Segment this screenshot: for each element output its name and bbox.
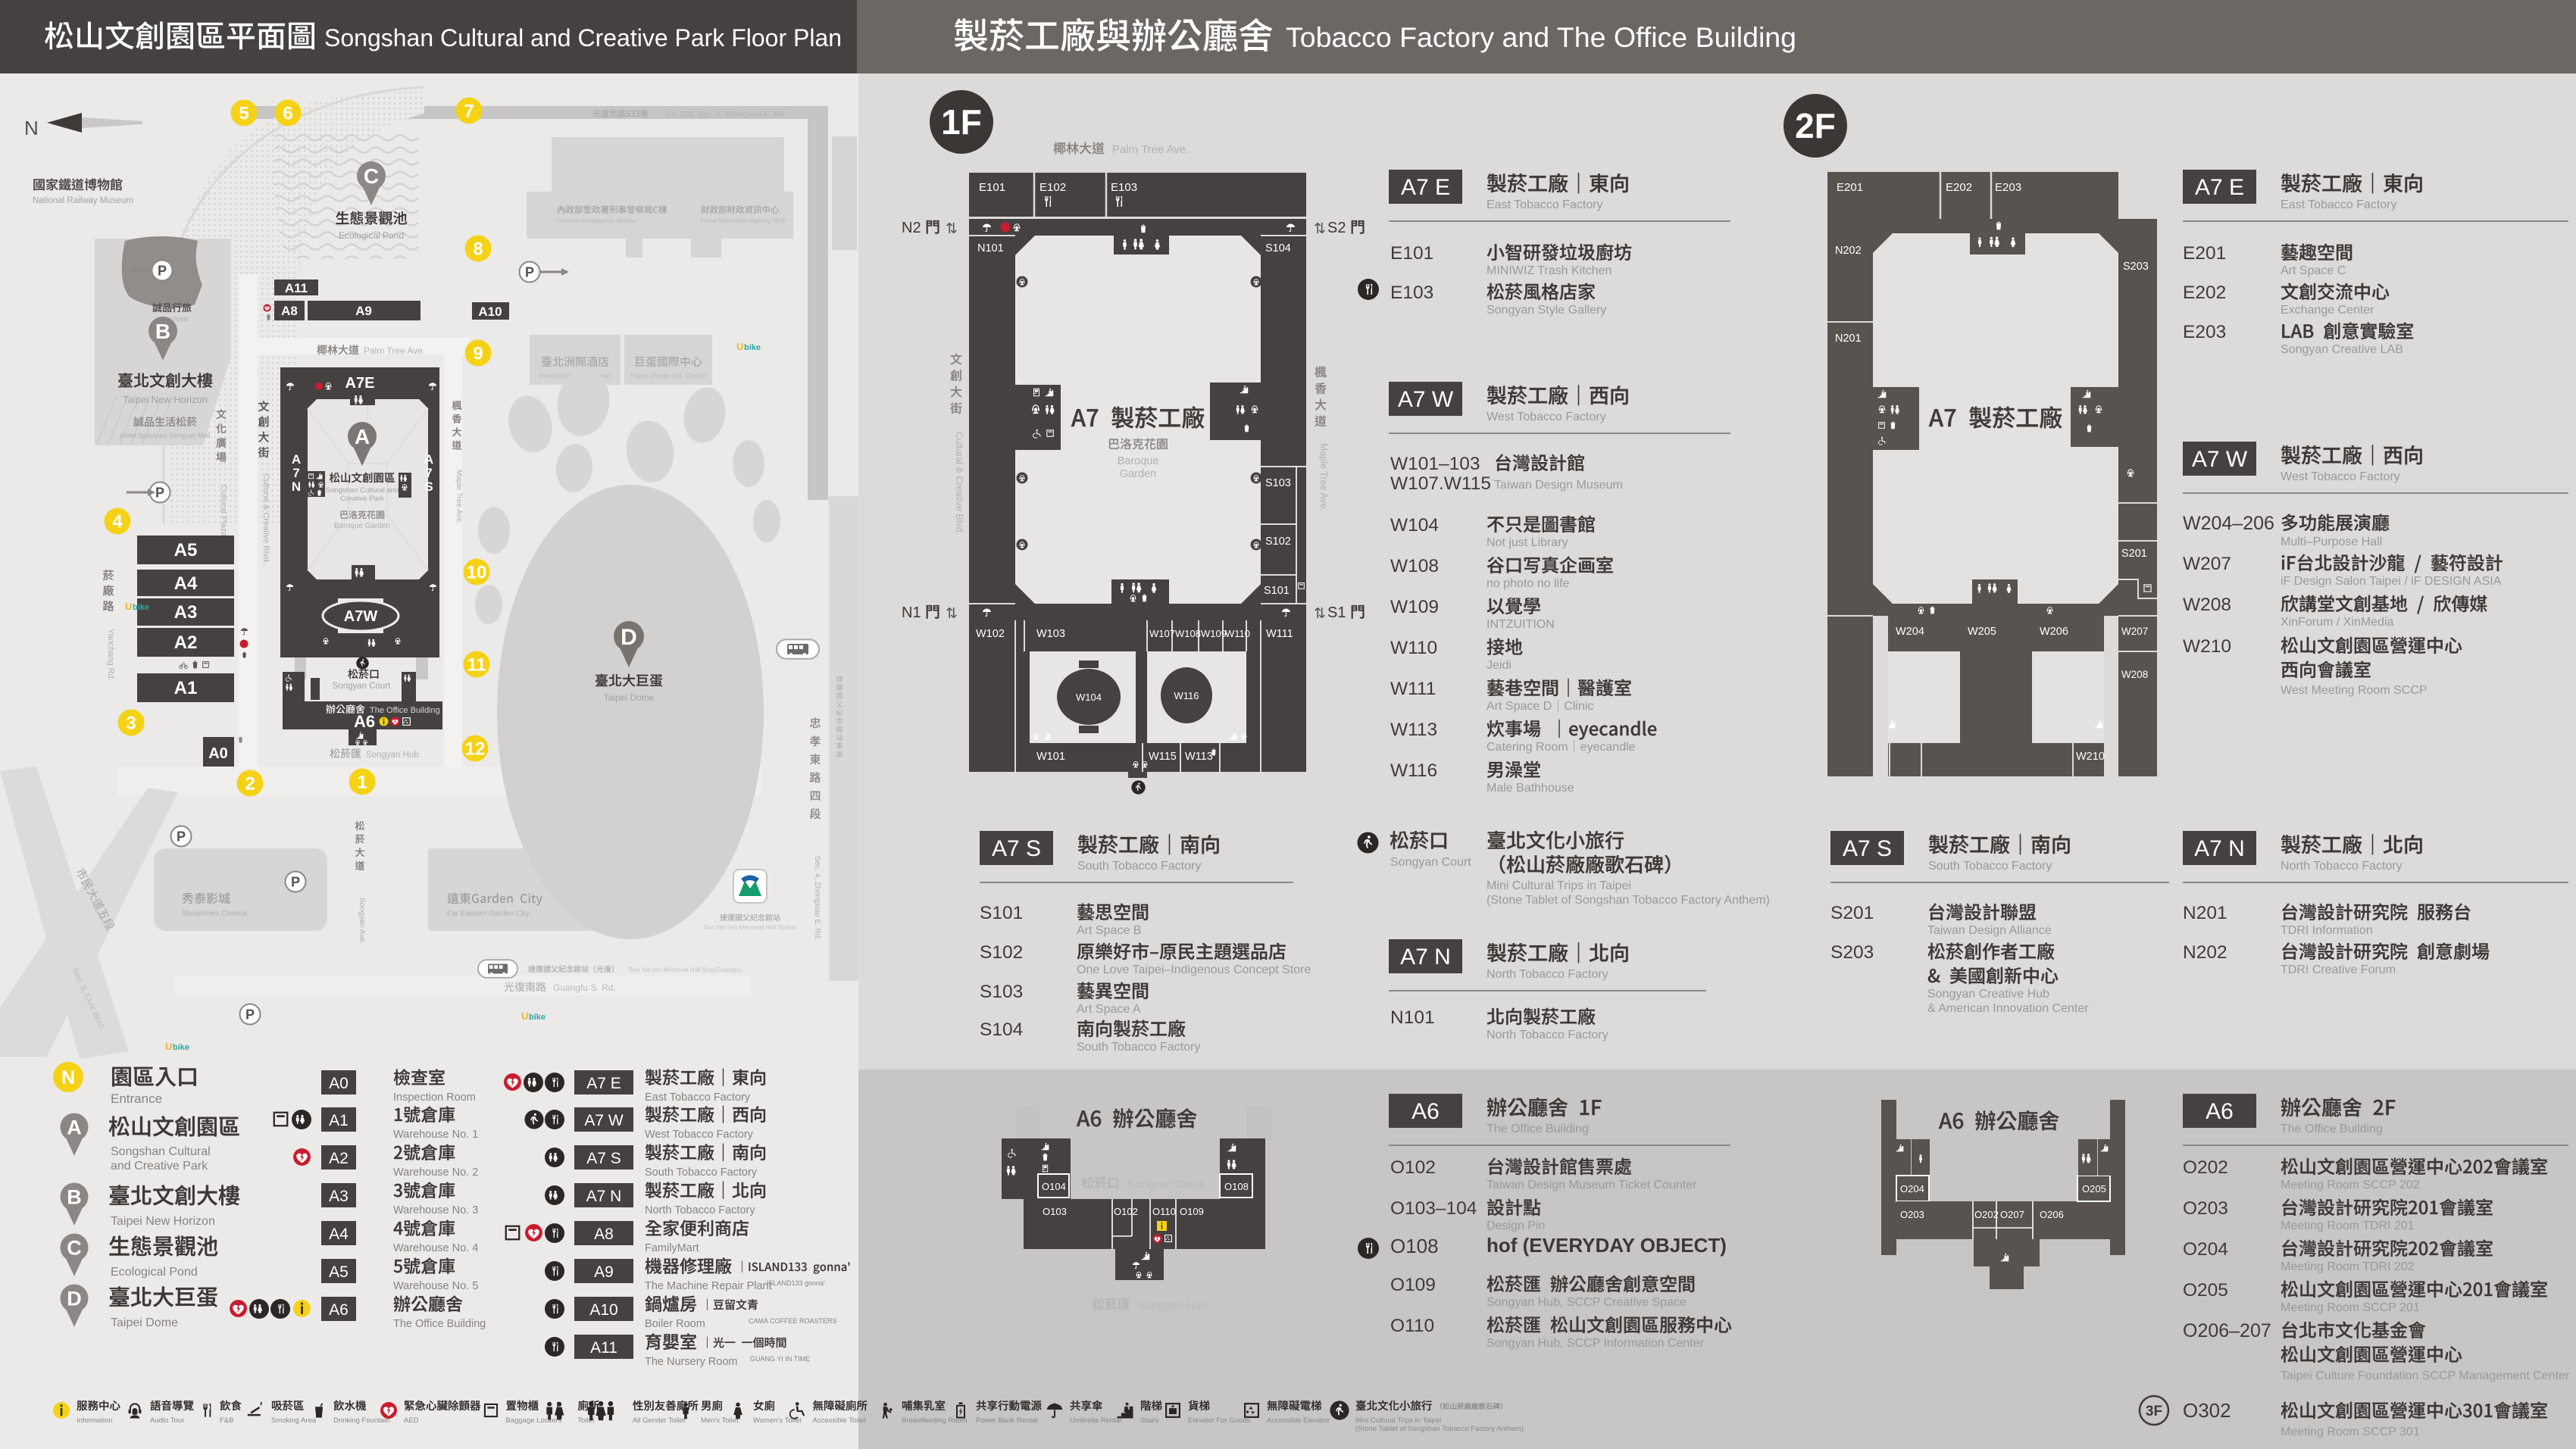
svg-text:Stairs: Stairs	[1140, 1416, 1159, 1425]
svg-text:1F: 1F	[941, 102, 982, 142]
svg-text:E103: E103	[1111, 181, 1137, 194]
svg-text:INTZUITION: INTZUITION	[1487, 618, 1555, 631]
svg-text:A1: A1	[329, 1112, 349, 1129]
svg-text:3: 3	[126, 714, 136, 734]
svg-text:A4: A4	[329, 1226, 349, 1243]
svg-text:West Tobacco Factory: West Tobacco Factory	[2281, 470, 2400, 483]
svg-text:Sec. 4, Zhongxiao E. Rd.: Sec. 4, Zhongxiao E. Rd.	[813, 856, 821, 940]
svg-text:A6: A6	[354, 712, 375, 731]
svg-text:S102: S102	[1265, 536, 1291, 548]
svg-text:P: P	[177, 829, 186, 845]
svg-text:The Office Building: The Office Building	[393, 1318, 486, 1330]
svg-text:Sun Yat-Sen Memorial Hall Stat: Sun Yat-Sen Memorial Hall Station	[704, 924, 797, 931]
svg-text:N2: N2	[902, 220, 921, 236]
svg-text:U: U	[736, 341, 743, 352]
svg-text:South Tobacco Factory: South Tobacco Factory	[1077, 860, 1201, 873]
svg-text:Taipei Dome Intl. Center: Taipei Dome Intl. Center	[630, 372, 707, 380]
svg-text:A5: A5	[329, 1263, 349, 1281]
svg-text:Warehouse No. 2: Warehouse No. 2	[393, 1166, 478, 1179]
svg-text:Information: Information	[77, 1416, 113, 1425]
svg-text:A7 E: A7 E	[2195, 175, 2244, 200]
svg-text:Taipei Culture Foundation SCCP: Taipei Culture Foundation SCCP Managemen…	[2281, 1369, 2570, 1382]
svg-text:A: A	[67, 1116, 82, 1139]
svg-text:Multi–Purpose Hall: Multi–Purpose Hall	[2281, 536, 2382, 548]
svg-text:W109: W109	[1390, 597, 1439, 617]
svg-text:A7E: A7E	[345, 375, 375, 392]
svg-text:O102: O102	[1390, 1157, 1436, 1178]
svg-text:A0: A0	[329, 1075, 349, 1092]
svg-text:Songyan Creative LAB: Songyan Creative LAB	[2281, 343, 2403, 356]
svg-text:GUANG YI IN TIME: GUANG YI IN TIME	[750, 1355, 810, 1363]
svg-text:O302: O302	[2183, 1399, 2231, 1422]
svg-text:Mini Cultural Trips in Taipei: Mini Cultural Trips in Taipei	[1487, 879, 1631, 892]
svg-text:W101–103: W101–103	[1390, 454, 1480, 474]
svg-text:O202: O202	[1974, 1209, 1999, 1220]
svg-text:W108: W108	[1175, 628, 1201, 639]
svg-text:A7 S: A7 S	[1843, 836, 1892, 861]
svg-text:O104: O104	[1042, 1181, 1066, 1192]
svg-text:West Meeting Room SCCP: West Meeting Room SCCP	[2281, 684, 2428, 697]
svg-text:Songyan Ave.: Songyan Ave.	[358, 898, 366, 945]
svg-text:S103: S103	[980, 982, 1023, 1002]
svg-text:7: 7	[425, 466, 432, 480]
svg-text:A7 E: A7 E	[1401, 175, 1450, 200]
svg-text:Cultural & Creative Blvd.: Cultural & Creative Blvd.	[261, 473, 270, 564]
svg-text:FamilyMart: FamilyMart	[645, 1242, 699, 1254]
svg-text:E103: E103	[1390, 283, 1433, 303]
svg-text:bike: bike	[744, 343, 761, 352]
svg-text:A5: A5	[174, 540, 198, 561]
svg-text:7: 7	[292, 466, 299, 480]
svg-text:O110: O110	[1152, 1206, 1176, 1217]
svg-text:Garden: Garden	[1120, 468, 1156, 480]
svg-text:E101: E101	[979, 181, 1005, 194]
svg-text:S101: S101	[980, 903, 1023, 923]
svg-text:A0: A0	[208, 745, 228, 762]
svg-text:Ln. 533, Sec. 4, Zhongxiao E.: Ln. 533, Sec. 4, Zhongxiao E. Rd.	[667, 110, 786, 119]
svg-text:7: 7	[464, 101, 474, 122]
svg-text:Taiwan Design Alliance: Taiwan Design Alliance	[1927, 924, 2052, 937]
svg-text:O206–207: O206–207	[2183, 1320, 2271, 1341]
svg-text:S2: S2	[1327, 220, 1346, 236]
svg-text:O202: O202	[2183, 1157, 2228, 1178]
svg-text:Sun Yat-sen Memorial Hall Stop: Sun Yat-sen Memorial Hall Stop(Guangfu)	[629, 967, 742, 973]
svg-text:9: 9	[473, 344, 483, 364]
svg-text:E101: E101	[1390, 243, 1433, 264]
svg-text:Yanchang Rd.: Yanchang Rd.	[106, 629, 115, 681]
svg-text:O205: O205	[2183, 1280, 2228, 1301]
svg-text:North Tobacco Factory: North Tobacco Factory	[645, 1204, 755, 1216]
svg-text:Cultural Plaza: Cultural Plaza	[219, 485, 228, 537]
svg-text:bike: bike	[529, 1013, 546, 1022]
svg-text:O103: O103	[1043, 1206, 1067, 1217]
svg-text:West Tobacco Factory: West Tobacco Factory	[645, 1129, 754, 1141]
svg-text:W210: W210	[2076, 751, 2105, 763]
svg-text:East Tobacco Factory: East Tobacco Factory	[645, 1091, 751, 1104]
svg-text:Meeting Room SCCP 201: Meeting Room SCCP 201	[2281, 1301, 2420, 1314]
svg-text:A2: A2	[329, 1150, 349, 1167]
svg-text:Fiscal Information Agency, MOF: Fiscal Information Agency, MOF	[701, 217, 786, 224]
svg-text:O203: O203	[1900, 1209, 1924, 1220]
svg-text:E202: E202	[2183, 283, 2226, 303]
svg-text:E201: E201	[1837, 181, 1863, 194]
svg-text:Drinking Fountain: Drinking Fountain	[333, 1416, 389, 1425]
svg-text:Meeting Room SCCP 301: Meeting Room SCCP 301	[2281, 1426, 2420, 1438]
svg-text:⇅: ⇅	[946, 606, 958, 622]
svg-text:Warehouse No. 4: Warehouse No. 4	[393, 1242, 478, 1254]
svg-text:Catering Room｜eyecandle: Catering Room｜eyecandle	[1487, 740, 1636, 754]
svg-text:A: A	[424, 452, 433, 467]
svg-text:W207: W207	[2183, 554, 2231, 574]
svg-text:A: A	[292, 452, 301, 467]
svg-text:W210: W210	[2183, 636, 2231, 657]
svg-text:W108: W108	[1390, 556, 1439, 576]
svg-text:Cultural & Creative Blvd.: Cultural & Creative Blvd.	[954, 432, 964, 535]
svg-text:W113: W113	[1185, 751, 1213, 763]
svg-text:A7 N: A7 N	[1400, 945, 1451, 970]
svg-text:S104: S104	[980, 1020, 1023, 1040]
svg-text:10: 10	[467, 563, 487, 583]
svg-text:Meeting Room TDRI 201: Meeting Room TDRI 201	[2281, 1219, 2415, 1232]
svg-text:A: A	[355, 425, 370, 448]
svg-text:A7 S: A7 S	[586, 1150, 621, 1167]
svg-text:O204: O204	[2183, 1239, 2228, 1260]
svg-text:Palm Tree Ave.: Palm Tree Ave.	[1112, 143, 1189, 156]
svg-text:F&B: F&B	[220, 1416, 233, 1425]
svg-text:W101: W101	[1036, 751, 1065, 763]
svg-text:W208: W208	[2121, 669, 2148, 680]
svg-text:Taipei Dome: Taipei Dome	[111, 1316, 178, 1329]
svg-text:N: N	[292, 479, 301, 494]
svg-text:U: U	[165, 1041, 172, 1052]
svg-text:C: C	[67, 1237, 82, 1260]
svg-text:N101: N101	[977, 242, 1004, 255]
svg-text:P: P	[245, 1007, 255, 1023]
svg-text:W116: W116	[1390, 760, 1437, 781]
svg-text:and Creative Park: and Creative Park	[111, 1160, 208, 1173]
svg-text:Art Space D｜Clinic: Art Space D｜Clinic	[1487, 699, 1593, 713]
svg-text:North Tobacco Factory: North Tobacco Factory	[1487, 968, 1608, 981]
svg-text:W205: W205	[1968, 626, 1996, 638]
svg-text:Songyan Style Gallery: Songyan Style Gallery	[1487, 304, 1606, 317]
svg-text:MINIWIZ Trash Kitchen: MINIWIZ Trash Kitchen	[1487, 264, 1612, 277]
svg-text:TDRI Creative Forum: TDRI Creative Forum	[2281, 963, 2396, 976]
svg-text:⇅: ⇅	[1314, 606, 1326, 622]
svg-text:S102: S102	[980, 942, 1023, 963]
svg-text:Warehouse No. 5: Warehouse No. 5	[393, 1280, 478, 1292]
svg-text:W115: W115	[1149, 751, 1177, 763]
svg-text:Umbrella Rental: Umbrella Rental	[1070, 1416, 1121, 1425]
svg-text:P: P	[158, 264, 167, 279]
svg-text:XinForum / XinMedia: XinForum / XinMedia	[2281, 616, 2393, 629]
svg-text:Songyan Creative Hub: Songyan Creative Hub	[1927, 988, 2049, 1001]
svg-text:Maple Tree Ave.: Maple Tree Ave.	[455, 470, 463, 524]
svg-text:N: N	[24, 117, 39, 139]
svg-text:Inspection Room: Inspection Room	[393, 1091, 476, 1104]
svg-text:W116: W116	[1174, 690, 1199, 701]
svg-text:A7 N: A7 N	[586, 1188, 622, 1205]
svg-text:Songyan Hub: Songyan Hub	[366, 751, 419, 760]
svg-text:S101: S101	[1264, 585, 1290, 597]
svg-text:O206: O206	[2040, 1209, 2064, 1220]
svg-text:Warehouse No. 3: Warehouse No. 3	[393, 1204, 478, 1216]
svg-text:Taipei New Horizon: Taipei New Horizon	[123, 394, 208, 405]
svg-text:W107: W107	[1149, 628, 1175, 639]
svg-text:⇅: ⇅	[1314, 221, 1326, 237]
svg-text:The Nursery Room: The Nursery Room	[645, 1356, 737, 1368]
svg-text:O204: O204	[1900, 1183, 1924, 1194]
svg-text:North Tobacco Factory: North Tobacco Factory	[1487, 1029, 1608, 1041]
svg-text:Baggage Lockers: Baggage Lockers	[506, 1416, 562, 1425]
svg-text:S203: S203	[1830, 942, 1874, 963]
svg-text:Songshan Cultural and Creative: Songshan Cultural and Creative Park Floo…	[324, 24, 842, 52]
svg-text:W207: W207	[2121, 626, 2148, 637]
svg-text:iF Design Salon Taipei / iF DE: iF Design Salon Taipei / iF DESIGN ASIA	[2281, 575, 2502, 588]
svg-text:1: 1	[357, 773, 367, 793]
svg-text:A1: A1	[174, 678, 198, 698]
svg-text:CAMA COFFEE ROASTERS: CAMA COFFEE ROASTERS	[749, 1317, 837, 1325]
svg-text:Jeidi: Jeidi	[1487, 659, 1512, 672]
svg-text:Songyan Hub, SCCP Information: Songyan Hub, SCCP Information Center	[1487, 1337, 1705, 1350]
svg-text:C: C	[364, 164, 379, 188]
svg-text:W107.W115: W107.W115	[1390, 473, 1491, 494]
svg-text:Exchange Center: Exchange Center	[2281, 304, 2374, 317]
svg-text:A7W: A7W	[344, 608, 378, 625]
svg-text:North Tobacco Factory: North Tobacco Factory	[2281, 860, 2402, 873]
svg-text:Power Bank Rental: Power Bank Rental	[976, 1416, 1037, 1425]
svg-text:East Tobacco Factory: East Tobacco Factory	[2281, 198, 2397, 211]
svg-text:A6: A6	[1411, 1099, 1440, 1124]
svg-text:Women's Toilet: Women's Toilet	[753, 1416, 802, 1425]
svg-text:Art Space C: Art Space C	[2281, 264, 2346, 277]
svg-text:Meeting Room SCCP 202: Meeting Room SCCP 202	[2281, 1179, 2420, 1191]
svg-text:W103: W103	[1036, 628, 1065, 640]
svg-text:N1: N1	[902, 604, 921, 621]
svg-text:W208: W208	[2183, 595, 2231, 615]
svg-text:Creative Park: Creative Park	[340, 495, 384, 503]
svg-text:The Office Building: The Office Building	[370, 706, 440, 715]
svg-text:O110: O110	[1390, 1316, 1434, 1336]
svg-text:A11: A11	[285, 281, 308, 295]
svg-text:Warehouse No. 1: Warehouse No. 1	[393, 1129, 478, 1141]
svg-text:Baroque: Baroque	[1118, 455, 1159, 467]
svg-text:Accessible Elevator: Accessible Elevator	[1267, 1416, 1330, 1425]
svg-text:W110: W110	[1225, 628, 1250, 639]
svg-text:South Tobacco Factory: South Tobacco Factory	[645, 1166, 758, 1179]
svg-text:S201: S201	[1830, 903, 1874, 923]
svg-text:Songshan Cultural and: Songshan Cultural and	[326, 486, 399, 495]
svg-text:2F: 2F	[1795, 106, 1836, 145]
svg-text:A7 W: A7 W	[2192, 447, 2248, 472]
svg-text:hof (EVERYDAY OBJECT): hof (EVERYDAY OBJECT)	[1487, 1234, 1727, 1257]
svg-text:Audio Tour: Audio Tour	[150, 1416, 184, 1425]
svg-text:Entrance: Entrance	[111, 1091, 162, 1106]
svg-text:A4: A4	[174, 573, 198, 594]
svg-text:P: P	[155, 486, 164, 501]
svg-text:Far Eastern Garden City: Far Eastern Garden City	[447, 910, 529, 918]
svg-text:(Stone Tablet of Songshan Toba: (Stone Tablet of Songshan Tobacco Factor…	[1487, 894, 1770, 907]
svg-text:S103: S103	[1265, 477, 1291, 489]
svg-text:The Office Building: The Office Building	[2281, 1123, 2383, 1135]
svg-text:Elevator For Goods: Elevator For Goods	[1188, 1416, 1251, 1425]
svg-text:Criminal Investigation Bureau: Criminal Investigation Bureau	[557, 217, 636, 224]
svg-text:O203: O203	[2183, 1198, 2228, 1219]
svg-text:S: S	[424, 479, 433, 494]
svg-text:Guangfu S. Rd.: Guangfu S. Rd.	[553, 982, 616, 993]
svg-text:Palm Tree Ave.: Palm Tree Ave.	[364, 345, 425, 356]
svg-text:A7 W: A7 W	[1398, 387, 1454, 412]
svg-text:P: P	[525, 265, 534, 280]
svg-text:W104: W104	[1076, 692, 1102, 703]
svg-text:O109: O109	[1180, 1206, 1204, 1217]
svg-text:Men's Toilet: Men's Toilet	[701, 1416, 739, 1425]
svg-text:A10: A10	[589, 1301, 617, 1319]
svg-text:O102: O102	[1114, 1206, 1138, 1217]
svg-text:W204: W204	[1896, 626, 1924, 638]
svg-text:A7 N: A7 N	[2194, 836, 2245, 861]
svg-text:S1: S1	[1327, 604, 1346, 621]
svg-text:Art Space A: Art Space A	[1077, 1003, 1141, 1016]
svg-text:A3: A3	[174, 602, 198, 623]
svg-text:South Tobacco Factory: South Tobacco Factory	[1928, 860, 2052, 873]
svg-text:S201: S201	[2121, 548, 2147, 560]
svg-text:D: D	[67, 1288, 82, 1310]
svg-text:U: U	[125, 601, 132, 612]
svg-text:no photo no life: no photo no life	[1487, 577, 1570, 590]
svg-text:Meeting Room TDRI 202: Meeting Room TDRI 202	[2281, 1260, 2415, 1273]
svg-text:A10: A10	[478, 304, 502, 319]
svg-text:O109: O109	[1390, 1275, 1436, 1295]
svg-text:Taipei New Horizon: Taipei New Horizon	[111, 1215, 215, 1228]
svg-text:Design Pin: Design Pin	[1487, 1219, 1545, 1232]
svg-text:Songyan Hub, SCCP Creative Spa: Songyan Hub, SCCP Creative Space	[1487, 1296, 1687, 1309]
svg-text:One Love Taipei–Indigenous Con: One Love Taipei–Indigenous Concept Store	[1077, 963, 1311, 976]
svg-text:E102: E102	[1039, 181, 1066, 194]
svg-text:Songyan Court: Songyan Court	[1127, 1178, 1204, 1191]
svg-text:N202: N202	[1835, 245, 1862, 257]
svg-text:The Office Building: The Office Building	[1487, 1123, 1589, 1135]
svg-text:3F: 3F	[2146, 1404, 2162, 1419]
svg-text:E203: E203	[2183, 322, 2226, 342]
svg-text:Songyan Court: Songyan Court	[1390, 856, 1471, 869]
svg-text:Taiwan Design Museum: Taiwan Design Museum	[1494, 479, 1623, 492]
svg-text:W111: W111	[1390, 679, 1436, 699]
svg-text:P: P	[291, 875, 300, 890]
svg-text:Baroque Garden: Baroque Garden	[334, 522, 390, 530]
svg-text:S104: S104	[1265, 242, 1291, 255]
svg-text:11: 11	[467, 655, 486, 676]
svg-text:(Stone Tablet of Songshan Toba: (Stone Tablet of Songshan Tobacco Factor…	[1355, 1425, 1524, 1433]
svg-text:A8: A8	[281, 304, 298, 318]
svg-text:6: 6	[283, 104, 292, 124]
svg-text:W111: W111	[1266, 628, 1293, 640]
svg-text:W109: W109	[1201, 628, 1227, 639]
svg-text:A8: A8	[594, 1226, 614, 1243]
svg-text:Taiwan Design Museum Ticket Co: Taiwan Design Museum Ticket Counter	[1487, 1179, 1697, 1191]
svg-text:B: B	[67, 1186, 82, 1209]
svg-text:bike: bike	[133, 603, 149, 612]
svg-text:West Tobacco Factory: West Tobacco Factory	[1487, 411, 1606, 423]
svg-text:2: 2	[245, 774, 255, 795]
svg-text:E201: E201	[2183, 243, 2226, 264]
svg-text:D: D	[621, 625, 637, 650]
svg-text:W110: W110	[1390, 638, 1437, 658]
svg-text:National Railway Museum: National Railway Museum	[33, 196, 133, 205]
svg-text:12: 12	[465, 739, 486, 760]
svg-text:Showtimes Cinema: Showtimes Cinema	[182, 910, 248, 918]
svg-text:O205: O205	[2082, 1183, 2106, 1194]
svg-text:O108: O108	[1224, 1181, 1249, 1192]
svg-text:W102: W102	[976, 628, 1005, 640]
svg-text:⇅: ⇅	[946, 221, 958, 237]
svg-text:Ecological Pond: Ecological Pond	[339, 230, 404, 241]
svg-text:Mini Cultural Trips in Taipei: Mini Cultural Trips in Taipei	[1355, 1416, 1441, 1425]
svg-text:A2: A2	[174, 632, 198, 653]
svg-text:Accessible Toilet: Accessible Toilet	[813, 1416, 866, 1425]
svg-text:& American Innovation Center: & American Innovation Center	[1927, 1002, 2089, 1015]
svg-text:5: 5	[239, 104, 249, 124]
svg-text:Taipei Dome: Taipei Dome	[604, 692, 655, 703]
svg-text:A9: A9	[355, 304, 372, 318]
svg-text:A3: A3	[329, 1188, 349, 1205]
svg-text:A7 S: A7 S	[992, 836, 1041, 861]
svg-text:N101: N101	[1390, 1007, 1435, 1028]
svg-text:U: U	[521, 1010, 528, 1022]
svg-text:bike: bike	[173, 1043, 189, 1052]
svg-text:N201: N201	[1835, 333, 1862, 345]
svg-text:The Machine Repair Plant: The Machine Repair Plant	[645, 1280, 772, 1292]
svg-text:East Tobacco Factory: East Tobacco Factory	[1487, 198, 1603, 211]
svg-text:A11: A11	[590, 1339, 617, 1357]
svg-text:S203: S203	[2123, 261, 2149, 273]
svg-text:Songshan Cultural: Songshan Cultural	[111, 1145, 211, 1158]
svg-text:N201: N201	[2183, 903, 2227, 923]
svg-text:Male Bathhouse: Male Bathhouse	[1487, 782, 1574, 795]
svg-text:Smoking Area: Smoking Area	[271, 1416, 317, 1425]
svg-text:South Tobacco Factory: South Tobacco Factory	[1077, 1041, 1200, 1054]
svg-text:B: B	[155, 320, 170, 343]
svg-text:Ecological Pond: Ecological Pond	[111, 1266, 198, 1279]
svg-text:TDRI Information: TDRI Information	[2281, 924, 2373, 937]
svg-text:W104: W104	[1390, 515, 1439, 536]
svg-text:O108: O108	[1390, 1235, 1439, 1257]
svg-text:N202: N202	[2183, 942, 2227, 963]
svg-text:A6: A6	[2206, 1099, 2234, 1124]
svg-text:O103–104: O103–104	[1390, 1198, 1477, 1219]
svg-text:N: N	[61, 1067, 75, 1088]
svg-text:Songyan Court: Songyan Court	[333, 682, 392, 691]
svg-text:ISLAND133 gonna': ISLAND133 gonna'	[767, 1279, 825, 1287]
svg-text:E202: E202	[1946, 181, 1972, 194]
svg-text:Not just Library: Not just Library	[1487, 536, 1568, 549]
svg-text:A9: A9	[594, 1263, 614, 1281]
svg-text:Art Space B: Art Space B	[1077, 924, 1141, 937]
svg-text:8: 8	[473, 239, 483, 260]
svg-text:W206: W206	[2040, 626, 2068, 638]
svg-text:A6: A6	[329, 1301, 349, 1319]
svg-text:W204–206: W204–206	[2183, 513, 2274, 534]
svg-text:eslite Spectrum Songyan Mall: eslite Spectrum Songyan Mall	[120, 432, 210, 439]
svg-text:4: 4	[112, 512, 123, 532]
svg-text:Maple Tree Ave.: Maple Tree Ave.	[1318, 443, 1329, 511]
svg-text:AED: AED	[404, 1416, 419, 1425]
svg-text:A7 E: A7 E	[586, 1075, 621, 1092]
svg-text:Songyan Hub: Songyan Hub	[1138, 1299, 1207, 1312]
svg-text:Tobacco Factory and The Office: Tobacco Factory and The Office Building	[1286, 21, 1796, 53]
svg-text:E203: E203	[1995, 181, 2021, 194]
svg-text:O207: O207	[2000, 1209, 2024, 1220]
svg-text:W113: W113	[1390, 720, 1437, 740]
